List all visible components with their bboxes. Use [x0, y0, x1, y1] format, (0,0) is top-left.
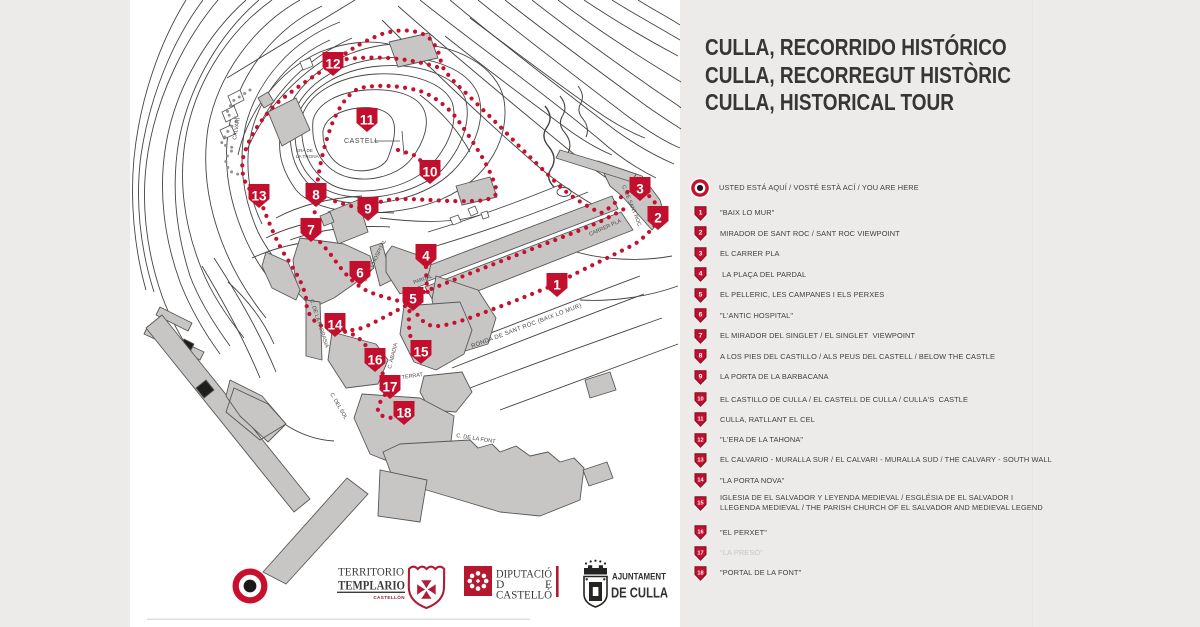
- svg-text:TEMPLARIO: TEMPLARIO: [338, 578, 405, 593]
- svg-text:5: 5: [699, 291, 703, 298]
- svg-text:7: 7: [699, 332, 703, 339]
- svg-text:AJUNTAMENT: AJUNTAMENT: [612, 572, 666, 582]
- svg-text:8: 8: [312, 188, 320, 203]
- svg-text:DIPUTACIÓ: DIPUTACIÓ: [496, 567, 552, 581]
- svg-text:CASTELL: CASTELL: [344, 138, 379, 145]
- svg-text:CASTELLÓN: CASTELLÓN: [373, 593, 405, 600]
- svg-text:4: 4: [699, 271, 703, 278]
- svg-text:DE CULLA: DE CULLA: [611, 586, 668, 602]
- svg-text:1: 1: [699, 209, 703, 216]
- svg-text:16: 16: [367, 353, 383, 368]
- svg-text:9: 9: [699, 373, 703, 380]
- svg-text:6: 6: [699, 312, 703, 319]
- svg-text:10: 10: [422, 165, 437, 180]
- svg-text:18: 18: [396, 406, 412, 421]
- svg-text:14: 14: [697, 478, 704, 484]
- svg-text:3: 3: [636, 182, 644, 197]
- svg-text:9: 9: [364, 202, 372, 217]
- svg-text:12: 12: [697, 437, 703, 443]
- svg-text:4: 4: [422, 249, 430, 264]
- svg-text:17: 17: [697, 550, 703, 556]
- svg-text:11: 11: [698, 417, 704, 423]
- svg-text:13: 13: [251, 189, 267, 204]
- svg-text:1: 1: [553, 278, 561, 293]
- svg-text:ERA DE: ERA DE: [296, 148, 313, 153]
- svg-text:17: 17: [382, 380, 397, 395]
- svg-text:CASTELLÓ: CASTELLÓ: [496, 588, 552, 602]
- svg-text:8: 8: [699, 353, 703, 360]
- svg-text:12: 12: [325, 57, 340, 72]
- svg-text:18: 18: [697, 570, 703, 576]
- svg-text:LA TRONA: LA TRONA: [296, 154, 320, 159]
- svg-text:6: 6: [356, 266, 364, 281]
- svg-text:15: 15: [413, 345, 429, 360]
- svg-text:2: 2: [699, 230, 703, 237]
- svg-text:5: 5: [409, 292, 417, 307]
- svg-text:13: 13: [697, 457, 703, 463]
- svg-text:2: 2: [654, 211, 662, 226]
- svg-text:11: 11: [360, 113, 375, 128]
- svg-text:15: 15: [697, 500, 703, 506]
- svg-text:3: 3: [699, 250, 703, 257]
- svg-text:14: 14: [327, 318, 343, 333]
- svg-text:10: 10: [697, 397, 703, 403]
- svg-text:7: 7: [307, 223, 315, 238]
- svg-text:16: 16: [697, 530, 703, 536]
